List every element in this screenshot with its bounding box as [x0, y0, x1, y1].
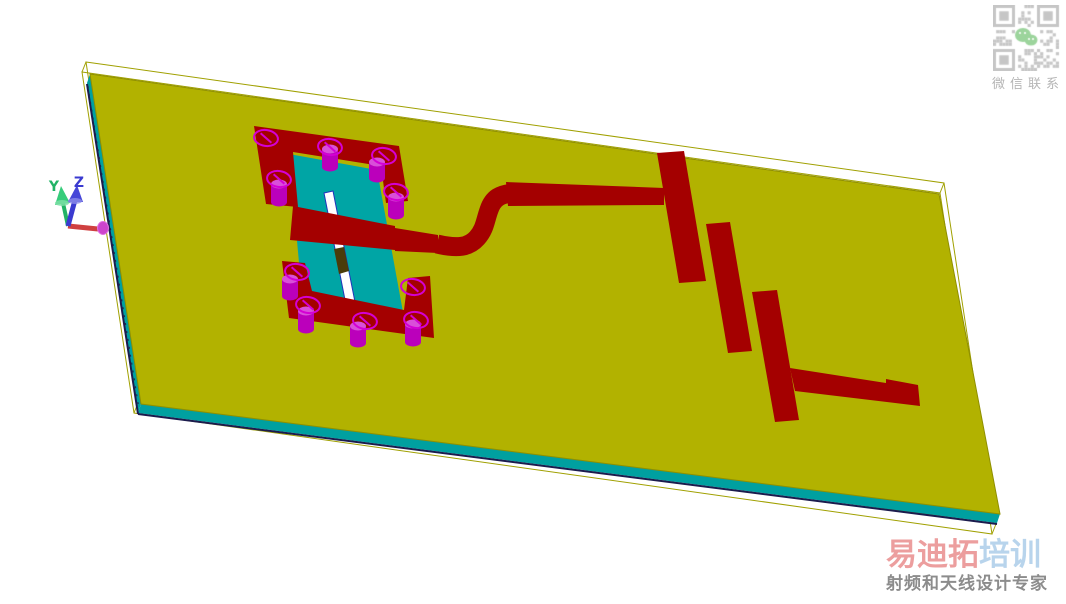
axis-y-cone-base	[55, 200, 69, 206]
air-box-edge	[992, 524, 996, 534]
air-box-edge	[82, 62, 86, 72]
axis-y-label: Y	[48, 179, 60, 195]
via-barrel[interactable]	[322, 145, 338, 172]
axis-z-label: Z	[74, 175, 84, 191]
brand-watermark: 易迪拓培训 射频和天线设计专家	[886, 540, 1062, 593]
brand-primary: 易迪拓	[886, 537, 979, 573]
board-top-face[interactable]	[90, 74, 1000, 514]
axis-x-shaft	[68, 226, 98, 229]
brand-tagline: 射频和天线设计专家	[886, 576, 1062, 593]
air-box-edge	[940, 183, 944, 193]
axis-x-head	[98, 222, 109, 235]
wechat-qr-watermark: 微信联系	[990, 5, 1066, 92]
viewport-3d[interactable]: Y Z 微信联系 易迪拓培训 射频和天线设计专家	[0, 0, 1066, 604]
pcb-board[interactable]	[87, 74, 1000, 524]
wechat-qr-code	[993, 5, 1063, 71]
axis-z-cone-base	[68, 198, 82, 204]
brand-secondary: 培训	[979, 537, 1041, 573]
brand-logo-text: 易迪拓培训	[886, 540, 1062, 571]
model-canvas[interactable]: Y Z	[0, 0, 1066, 604]
qr-caption: 微信联系	[990, 73, 1066, 92]
via-barrel[interactable]	[350, 322, 366, 348]
